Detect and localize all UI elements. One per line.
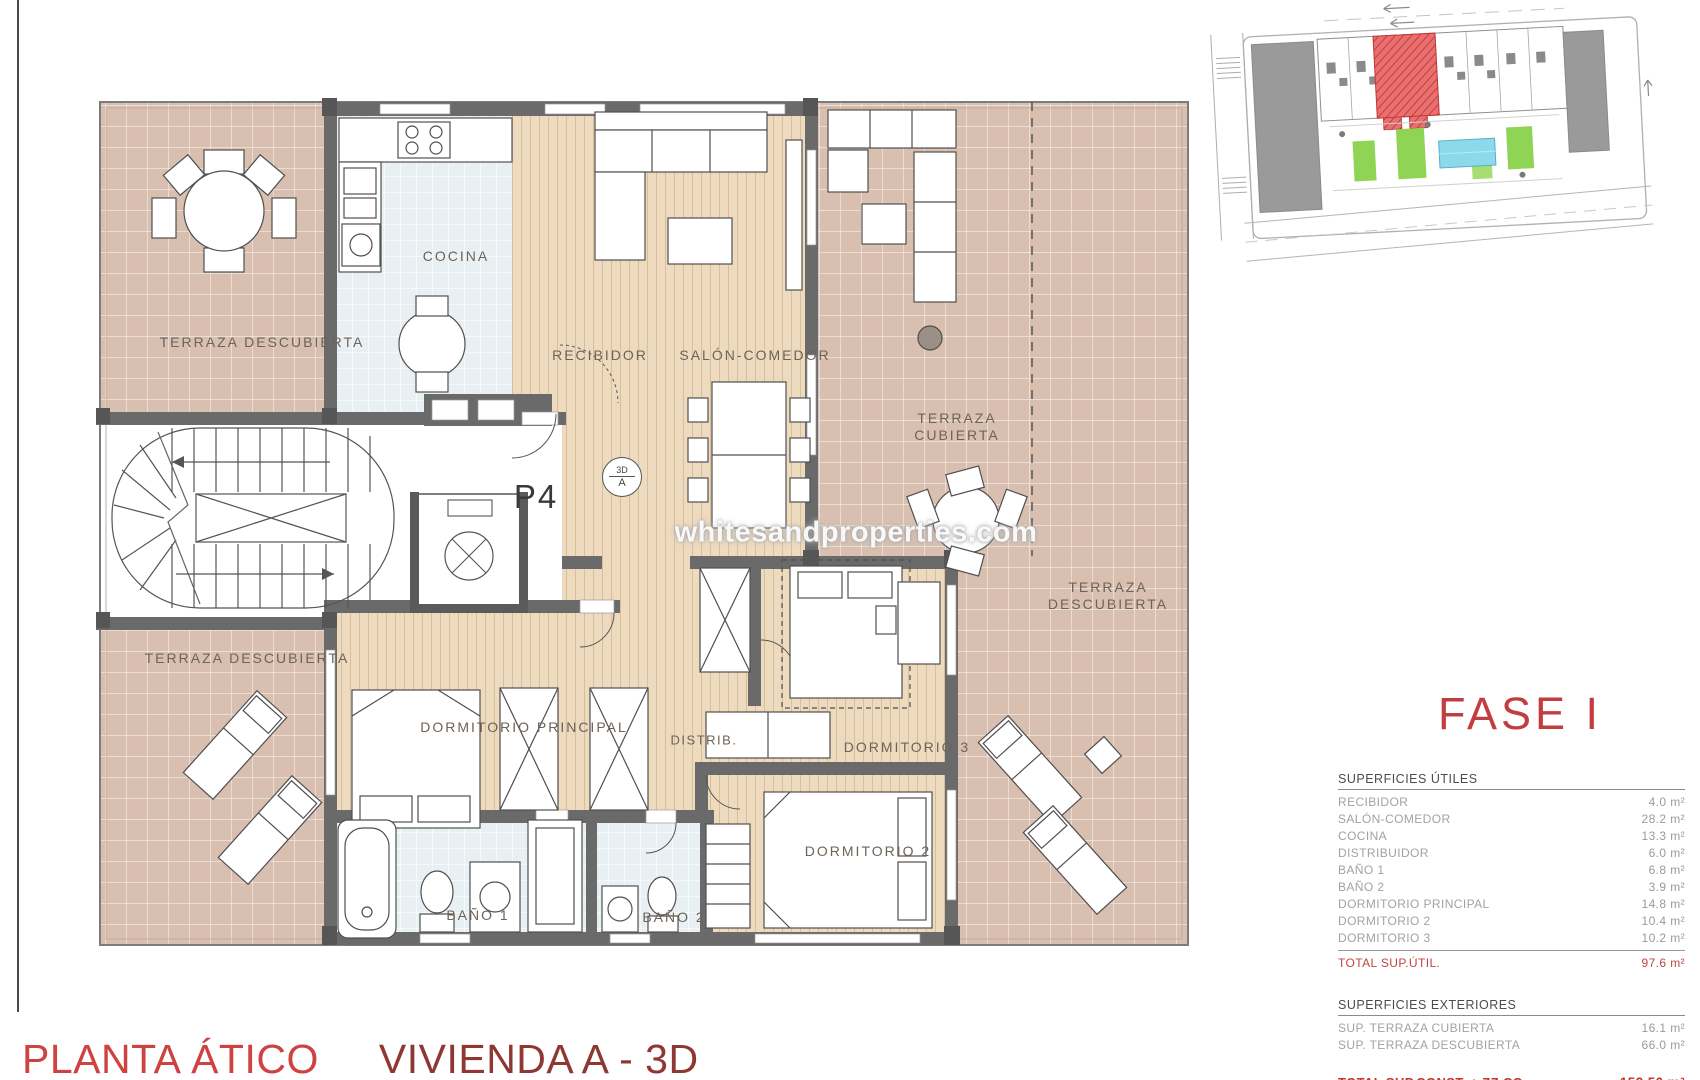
exteriores-header: SUPERFICIES EXTERIORES — [1338, 998, 1685, 1016]
row-label: SUP. TERRAZA CUBIERTA — [1338, 1020, 1494, 1037]
room-label-salon-comedor: SALÓN-COMEDOR — [679, 347, 830, 363]
areas-table: SUPERFICIES ÚTILES RECIBIDOR 4.0 m² SALÓ… — [1338, 772, 1685, 1080]
total-value: 97.6 m² — [1642, 955, 1685, 972]
row-value: 4.0 m² — [1649, 794, 1685, 811]
row-label: COCINA — [1338, 828, 1387, 845]
sheet-title: PLANTA ÁTICO VIVIENDA A - 3D — [22, 1036, 699, 1080]
utiles-header: SUPERFICIES ÚTILES — [1338, 772, 1685, 790]
table-row: DORMITORIO 3 10.2 m² — [1338, 930, 1685, 947]
row-label: DISTRIBUIDOR — [1338, 845, 1429, 862]
row-value: 16.1 m² — [1642, 1020, 1685, 1037]
room-label-terraza-descubierta-right: TERRAZA DESCUBIERTA — [1048, 579, 1168, 613]
room-label-recibidor: RECIBIDOR — [552, 347, 648, 363]
site-plan — [1210, 0, 1660, 263]
row-label: DORMITORIO 2 — [1338, 913, 1431, 930]
table-row: SUP. TERRAZA DESCUBIERTA 66.0 m² — [1338, 1037, 1685, 1054]
watermark: whitesandproperties.com — [675, 517, 1038, 550]
plan-level-title: PLANTA ÁTICO — [22, 1036, 319, 1080]
room-label-bano-1: BAÑO 1 — [446, 907, 509, 923]
row-label: SUP. TERRAZA DESCUBIERTA — [1338, 1037, 1520, 1054]
site-plan-highlighted-unit — [1373, 33, 1440, 130]
row-value: 10.4 m² — [1642, 913, 1685, 930]
view-direction-top: 3D — [609, 465, 635, 477]
dwelling-title: VIVIENDA A - 3D — [379, 1036, 699, 1080]
master-bedroom-furniture — [352, 688, 648, 828]
table-row: BAÑO 2 3.9 m² — [1338, 879, 1685, 896]
unit-label: P4 — [514, 478, 558, 516]
row-label: SALÓN-COMEDOR — [1338, 811, 1451, 828]
row-value: 6.8 m² — [1649, 862, 1685, 879]
row-label: BAÑO 1 — [1338, 862, 1384, 879]
row-value: 66.0 m² — [1642, 1037, 1685, 1054]
zebra-crossing — [1216, 57, 1247, 193]
row-value: 28.2 m² — [1642, 811, 1685, 828]
room-label-cocina: COCINA — [423, 248, 489, 264]
table-row: SUP. TERRAZA CUBIERTA 16.1 m² — [1338, 1020, 1685, 1037]
phase-title: FASE I — [1438, 688, 1602, 740]
elevator — [410, 492, 528, 613]
grand-total-label: TOTAL SUP.CONST. + ZZ.CC. — [1338, 1074, 1527, 1080]
room-label-bano-2: BAÑO 2 — [642, 909, 705, 925]
room-label-terraza-descubierta-top: TERRAZA DESCUBIERTA — [160, 334, 365, 350]
table-row: BAÑO 1 6.8 m² — [1338, 862, 1685, 879]
grand-total-row: TOTAL SUP.CONST. + ZZ.CC. 152.50 m² — [1338, 1074, 1685, 1080]
row-label: DORMITORIO PRINCIPAL — [1338, 896, 1490, 913]
room-label-dormitorio-2: DORMITORIO 2 — [805, 843, 931, 859]
room-label-terraza-descubierta-bottom: TERRAZA DESCUBIERTA — [145, 650, 350, 666]
table-row: DORMITORIO PRINCIPAL 14.8 m² — [1338, 896, 1685, 913]
grand-total-value: 152.50 m² — [1620, 1074, 1685, 1080]
row-value: 14.8 m² — [1642, 896, 1685, 913]
view-direction-bottom: A — [618, 477, 625, 489]
row-label: RECIBIDOR — [1338, 794, 1408, 811]
table-row: COCINA 13.3 m² — [1338, 828, 1685, 845]
room-label-dormitorio-3: DORMITORIO 3 — [844, 739, 970, 755]
floorplan-sheet: TERRAZA DESCUBIERTA COCINA RECIBIDOR SAL… — [0, 0, 1700, 1080]
table-row: SALÓN-COMEDOR 28.2 m² — [1338, 811, 1685, 828]
row-value: 10.2 m² — [1642, 930, 1685, 947]
row-value: 6.0 m² — [1649, 845, 1685, 862]
room-label-terraza-cubierta: TERRAZA CUBIERTA — [914, 410, 1000, 444]
row-label: DORMITORIO 3 — [1338, 930, 1431, 947]
table-row: DISTRIBUIDOR 6.0 m² — [1338, 845, 1685, 862]
row-label: BAÑO 2 — [1338, 879, 1384, 896]
terraza-cubierta-line2: CUBIERTA — [914, 427, 1000, 444]
table-row: RECIBIDOR 4.0 m² — [1338, 794, 1685, 811]
total-label: TOTAL SUP.ÚTIL. — [1338, 955, 1440, 972]
room-label-dormitorio-principal: DORMITORIO PRINCIPAL — [420, 719, 628, 735]
table-row: DORMITORIO 2 10.4 m² — [1338, 913, 1685, 930]
terraza-descubierta-right-line2: DESCUBIERTA — [1048, 596, 1168, 613]
utiles-total-row: TOTAL SUP.ÚTIL. 97.6 m² — [1338, 950, 1685, 972]
terraza-cubierta-line1: TERRAZA — [914, 410, 1000, 427]
room-label-distribuidor: DISTRIB. — [671, 733, 738, 748]
view-direction-symbol: 3D A — [602, 457, 642, 497]
row-value: 13.3 m² — [1642, 828, 1685, 845]
terraza-descubierta-right-line1: TERRAZA — [1048, 579, 1168, 596]
row-value: 3.9 m² — [1649, 879, 1685, 896]
sheet-border-line — [17, 0, 19, 1012]
